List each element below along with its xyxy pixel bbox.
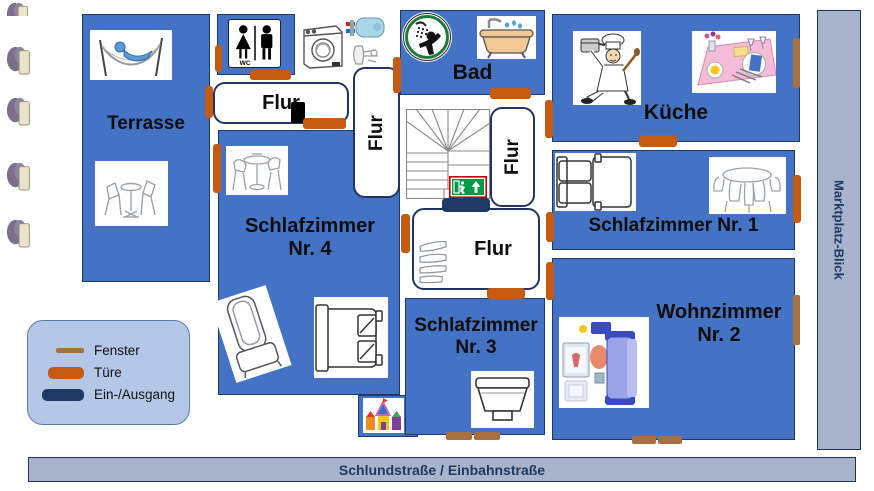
street-marktplatz: Marktplatz-Blick — [817, 10, 861, 450]
bed-icon — [471, 371, 534, 428]
hall-flur-center-label: Flur — [474, 238, 512, 261]
door — [490, 88, 531, 99]
door — [545, 100, 553, 138]
window — [446, 432, 472, 440]
room-wohnzimmer-2-label: Wohnzimmer Nr. 2 — [649, 301, 789, 347]
window — [632, 436, 656, 444]
legend-tuere-label: Türe — [94, 365, 122, 380]
floor-plan: Marktplatz-Blick Schlundstraße / Einbahn… — [0, 0, 874, 491]
legend: Fenster Türe Ein-/Ausgang — [27, 320, 190, 425]
legend-item-tuere: Türe — [42, 365, 175, 380]
emergency-exit-icon — [449, 176, 487, 198]
entrance-exit-bar — [442, 198, 490, 212]
window — [474, 432, 500, 440]
legend-item-ein-ausgang: Ein-/Ausgang — [42, 387, 175, 402]
door — [546, 262, 554, 300]
hall-flur-left-label: Flur — [365, 115, 387, 151]
plant-icon — [6, 44, 34, 76]
shower-sign-icon — [402, 12, 452, 62]
washing-machine-icon — [296, 20, 348, 70]
wc-sign-icon: WC — [228, 19, 281, 68]
window — [793, 295, 800, 345]
entrance-swatch-icon — [42, 389, 84, 401]
room-schlafzimmer-3-label: Schlafzimmer Nr. 3 — [409, 315, 543, 359]
legend-fenster-label: Fenster — [94, 343, 140, 358]
street-schlundstrasse-label: Schlundstraße / Einbahnstraße — [339, 462, 545, 478]
door — [487, 288, 525, 299]
boiler-icon — [344, 16, 386, 40]
dining-chairs-icon — [709, 157, 786, 214]
window — [793, 38, 800, 88]
room-bad-label: Bad — [401, 61, 544, 85]
window-swatch-icon — [56, 348, 84, 353]
room-schlafzimmer-4-label: Schlafzimmer Nr. 4 — [229, 215, 391, 261]
door — [401, 214, 410, 253]
plant-icon — [6, 217, 34, 249]
bistro-table-icon — [226, 146, 288, 195]
bed-icon — [314, 297, 388, 378]
hall-flur-right-label: Flur — [501, 139, 523, 175]
door — [205, 86, 213, 118]
castle-icon — [363, 398, 404, 433]
door — [215, 45, 222, 72]
door-swatch-icon — [48, 367, 84, 379]
street-marktplatz-label: Marktplatz-Blick — [832, 180, 847, 280]
living-room-icon — [559, 317, 649, 408]
door — [250, 70, 291, 80]
room-terrasse-label: Terrasse — [83, 113, 209, 135]
hammock-icon — [90, 30, 172, 80]
plant-icon — [6, 160, 34, 192]
legend-ein-ausgang-label: Ein-/Ausgang — [94, 387, 175, 402]
door — [213, 144, 221, 193]
room-schlafzimmer-1-label: Schlafzimmer Nr. 1 — [553, 215, 794, 237]
legend-item-fenster: Fenster — [42, 343, 175, 358]
door — [546, 212, 554, 242]
shoe-rack-icon — [416, 237, 450, 287]
wc-sign-text: WC — [239, 60, 250, 67]
window — [658, 436, 682, 444]
hall-flur-right: Flur — [490, 107, 535, 207]
patio-chairs-icon — [95, 161, 168, 226]
street-schlundstrasse: Schlundstraße / Einbahnstraße — [28, 457, 856, 482]
door — [793, 175, 801, 223]
door — [393, 57, 401, 93]
door — [303, 118, 346, 129]
door — [639, 135, 677, 147]
plant-icon — [6, 95, 34, 127]
sink-fixture-icon — [350, 42, 382, 68]
bathtub-icon — [477, 16, 536, 59]
bed-icon — [555, 153, 636, 211]
table-setting-icon — [692, 31, 776, 93]
chef-icon — [573, 31, 641, 105]
plant-icon — [6, 0, 32, 16]
